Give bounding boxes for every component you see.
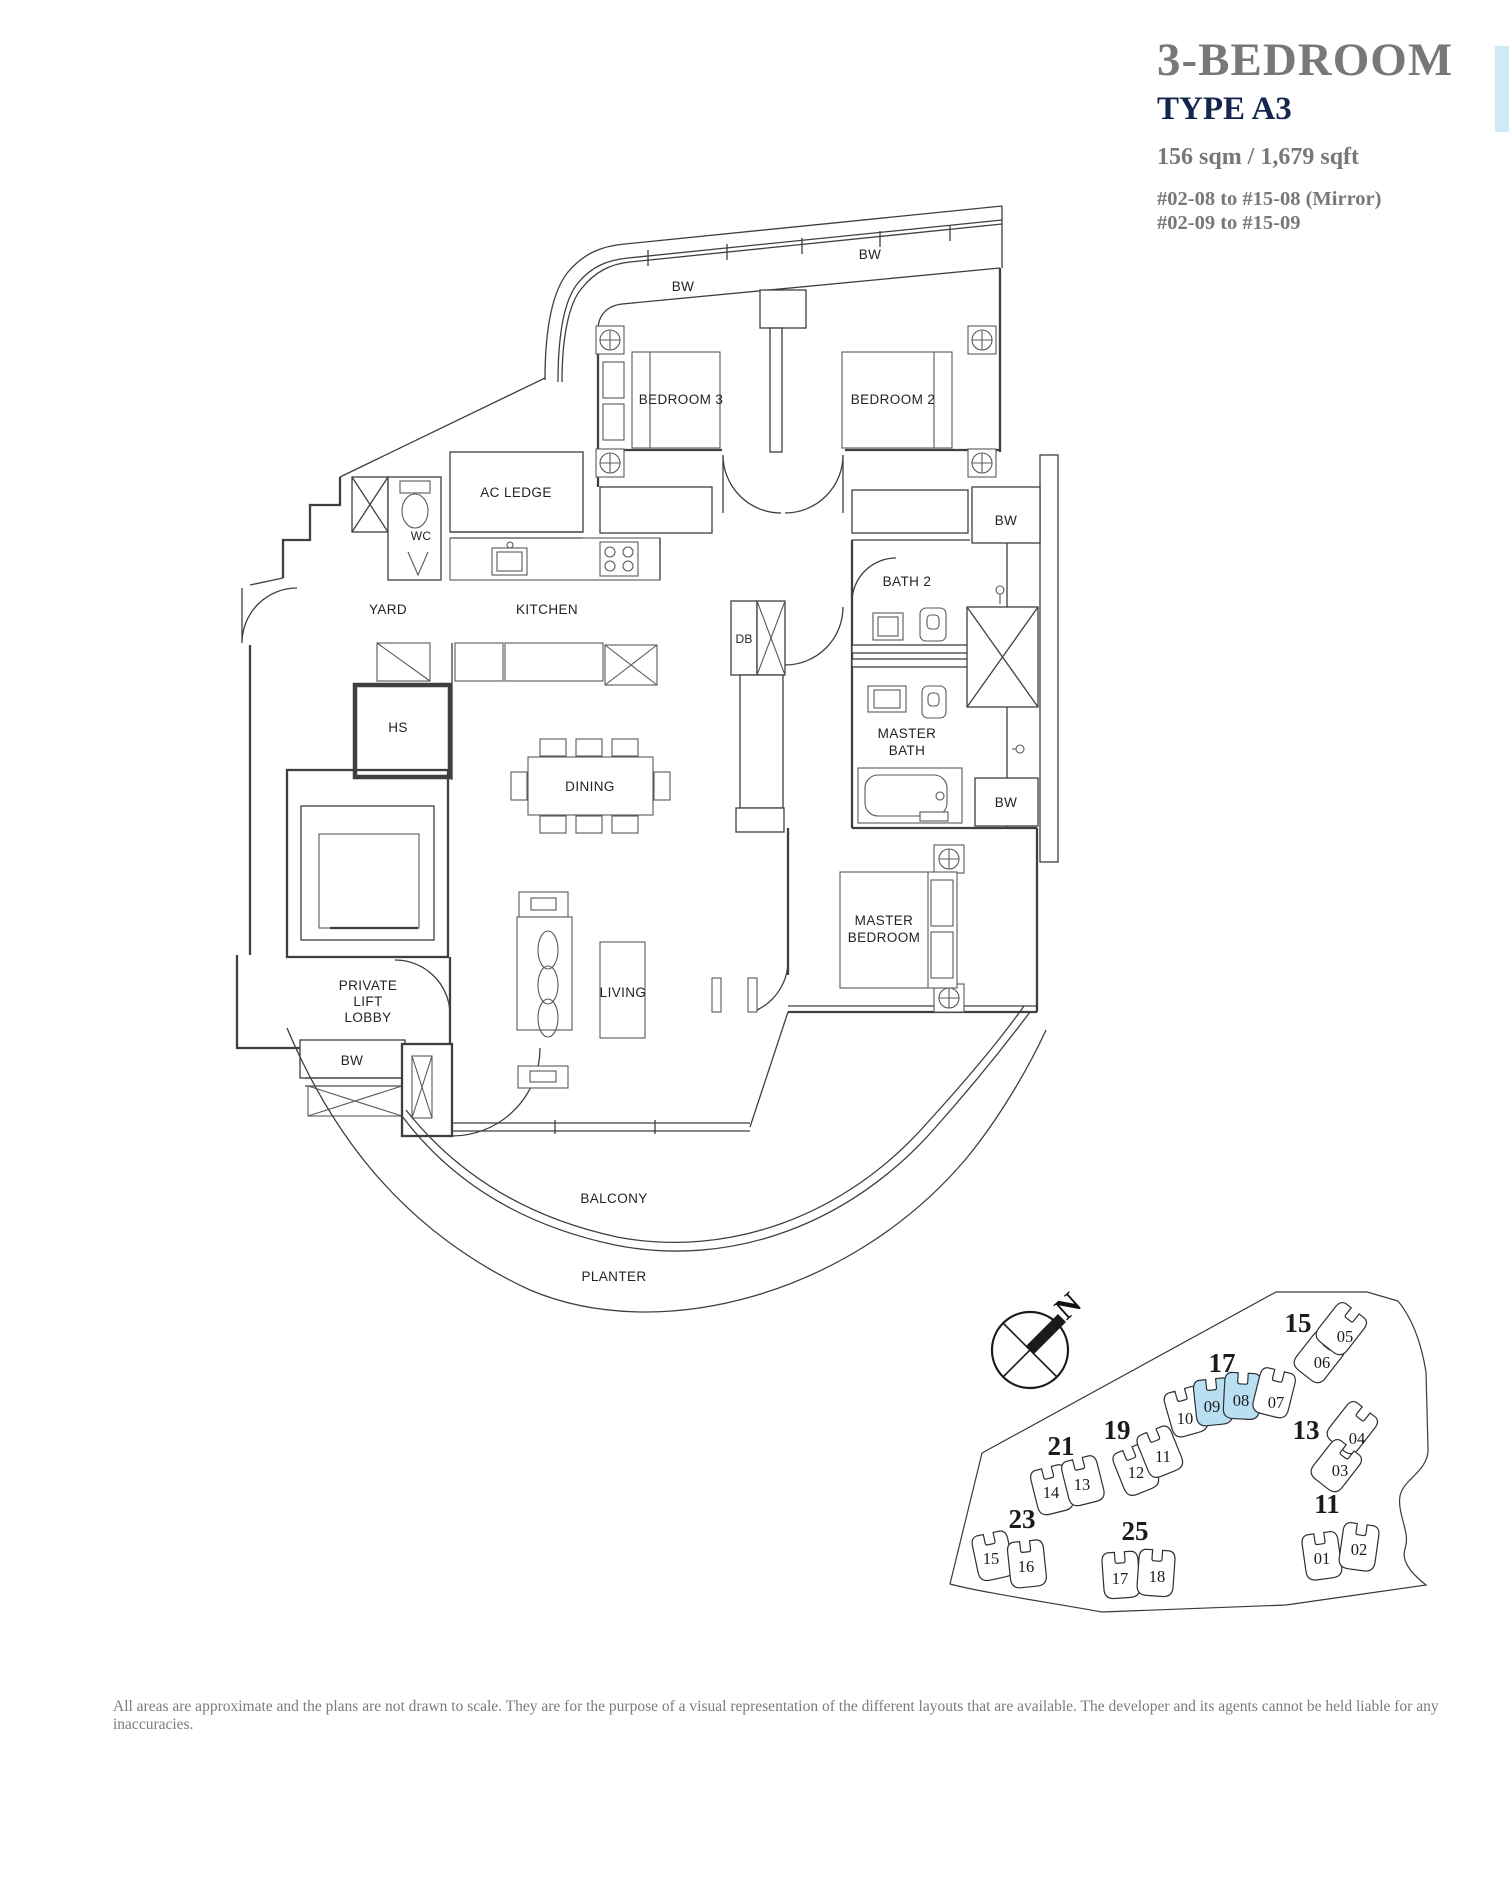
block-number-21: 21 <box>1048 1431 1075 1461</box>
label-master-bath-2: BATH <box>889 743 926 758</box>
block-number-11: 11 <box>1314 1489 1340 1519</box>
label-lobby-2: LIFT <box>353 994 382 1009</box>
label-planter: PLANTER <box>581 1269 646 1284</box>
label-bedroom3: BEDROOM 3 <box>639 392 724 407</box>
block-number-15: 15 <box>1285 1308 1312 1338</box>
label-bw-right-mid: BW <box>995 795 1018 810</box>
kitchen-cabinets <box>377 643 657 685</box>
unit-number: 09 <box>1204 1397 1221 1416</box>
block-number-13: 13 <box>1293 1415 1320 1445</box>
label-bw-right-top: BW <box>995 513 1018 528</box>
plan-canvas: BW BW BED <box>0 0 1509 1893</box>
label-bedroom2: BEDROOM 2 <box>851 392 936 407</box>
yard-entry <box>242 578 297 955</box>
unit-number: 06 <box>1314 1353 1331 1372</box>
block-number-17: 17 <box>1209 1348 1236 1378</box>
unit-number: 14 <box>1043 1483 1060 1502</box>
label-lobby-1: PRIVATE <box>339 978 398 993</box>
unit-number: 12 <box>1128 1463 1145 1482</box>
label-master-bedroom-2: BEDROOM <box>848 930 921 945</box>
label-living: LIVING <box>600 985 647 1000</box>
label-balcony: BALCONY <box>580 1191 647 1206</box>
disclaimer-text: All areas are approximate and the plans … <box>113 1698 1443 1734</box>
unit-number: 08 <box>1233 1391 1250 1410</box>
unit-number: 18 <box>1149 1567 1166 1586</box>
unit-number: 02 <box>1351 1540 1368 1559</box>
lift-shaft <box>287 770 448 957</box>
label-bw-bottom-left: BW <box>341 1053 364 1068</box>
label-dining: DINING <box>565 779 615 794</box>
unit-number: 11 <box>1155 1447 1171 1466</box>
label-bath2: BATH 2 <box>883 574 932 589</box>
floor-plan: BW BW BED <box>237 206 1058 1312</box>
unit-number: 05 <box>1337 1327 1354 1346</box>
label-kitchen: KITCHEN <box>516 602 578 617</box>
label-lobby-3: LOBBY <box>344 1010 391 1025</box>
bath2-fixtures <box>873 608 946 641</box>
compass: N <box>992 1285 1088 1388</box>
unit-number: 16 <box>1018 1557 1035 1576</box>
unit-number: 04 <box>1349 1429 1366 1448</box>
unit-number: 01 <box>1314 1549 1331 1568</box>
label-db: DB <box>735 632 752 646</box>
label-hs: HS <box>388 720 408 735</box>
unit-number: 13 <box>1074 1475 1091 1494</box>
site-plan: 10 09 08 07 06 05 04 03 12 11 14 13 15 1… <box>950 1292 1428 1612</box>
label-bw-top-left: BW <box>672 279 695 294</box>
block-number-25: 25 <box>1122 1516 1149 1546</box>
unit-number: 17 <box>1112 1569 1129 1588</box>
unit-number: 03 <box>1332 1461 1349 1480</box>
label-wc: WC <box>411 529 432 543</box>
unit-number: 15 <box>983 1549 1000 1568</box>
block-number-23: 23 <box>1009 1504 1036 1534</box>
label-ac-ledge: AC LEDGE <box>480 485 551 500</box>
floorplan-page: 3-BEDROOM TYPE A3 156 sqm / 1,679 sqft #… <box>0 0 1509 1893</box>
compass-needle <box>1026 1314 1066 1354</box>
unit-number: 07 <box>1268 1393 1285 1412</box>
unit-number: 10 <box>1177 1409 1194 1428</box>
label-bw-top-right: BW <box>859 247 882 262</box>
kitchen-fixtures <box>450 532 660 580</box>
block-number-19: 19 <box>1104 1415 1131 1445</box>
label-master-bedroom-1: MASTER <box>855 913 914 928</box>
label-yard: YARD <box>369 602 407 617</box>
label-master-bath-1: MASTER <box>878 726 937 741</box>
